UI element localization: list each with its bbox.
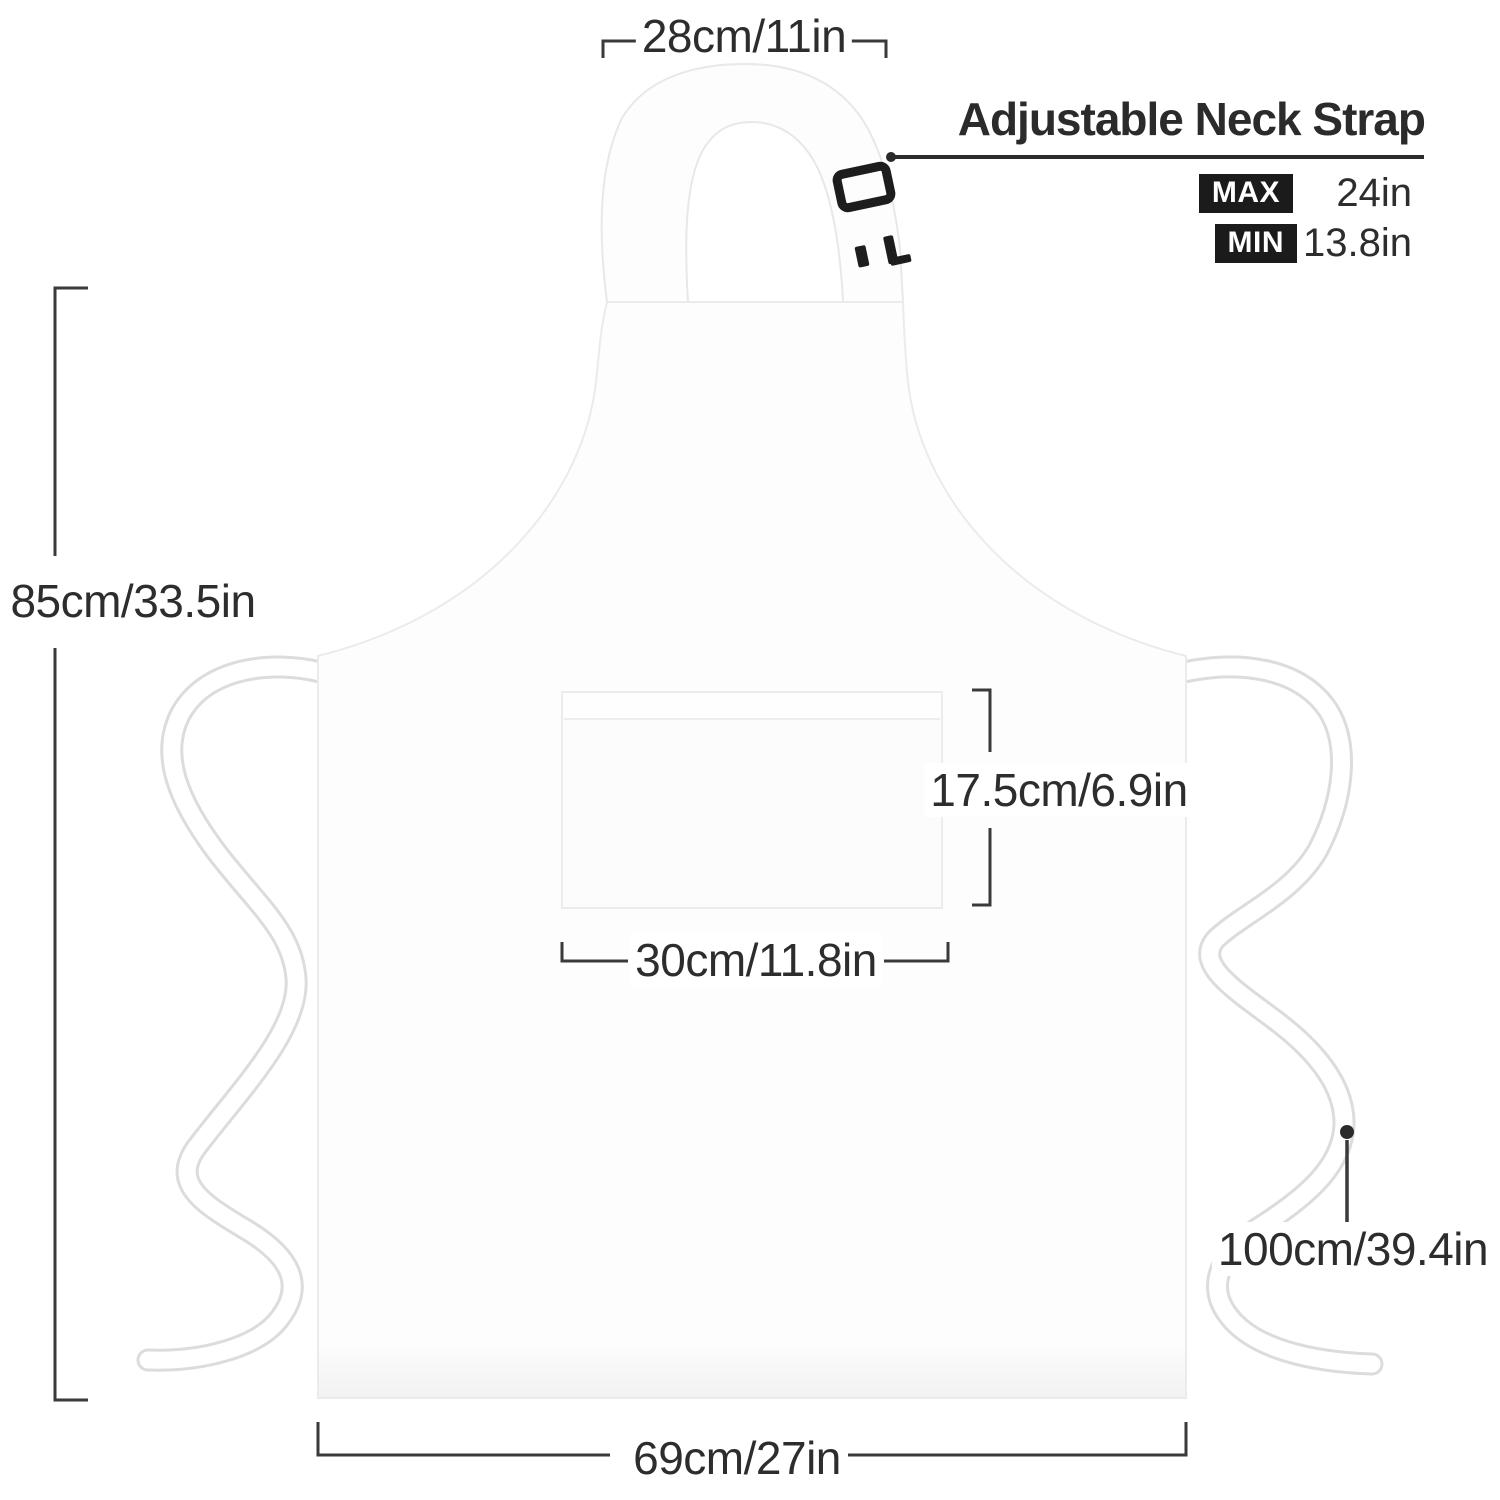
max-badge: MAX <box>1199 174 1293 213</box>
neck-strap-callout-heading: Adjustable Neck Strap <box>958 92 1425 146</box>
pocket-width-label: 30cm/11.8in <box>629 933 883 987</box>
callout-underline <box>886 152 1424 162</box>
bottom-hem-shading <box>319 1341 1185 1397</box>
waist-tie-length-label: 100cm/39.4in <box>1212 1222 1494 1276</box>
neck-strap-width-label: 28cm/11in <box>636 9 852 63</box>
dim-apron-height-bracket <box>55 288 88 1400</box>
apron-dimension-diagram: 28cm/11in 85cm/33.5in 17.5cm/6.9in 30cm/… <box>0 0 1500 1500</box>
max-value: 24in <box>1336 171 1412 216</box>
apron-height-label: 85cm/33.5in <box>4 574 261 628</box>
pocket-hem <box>564 694 940 718</box>
min-value: 13.8in <box>1303 221 1412 266</box>
neck-strap <box>602 64 903 302</box>
left-waist-tie <box>148 667 320 1360</box>
dim-tie-length-dot <box>1340 1125 1354 1139</box>
front-pocket <box>562 692 942 908</box>
min-badge: MIN <box>1215 224 1298 263</box>
apron-width-label: 69cm/27in <box>627 1431 847 1485</box>
pocket-height-label: 17.5cm/6.9in <box>924 763 1193 817</box>
